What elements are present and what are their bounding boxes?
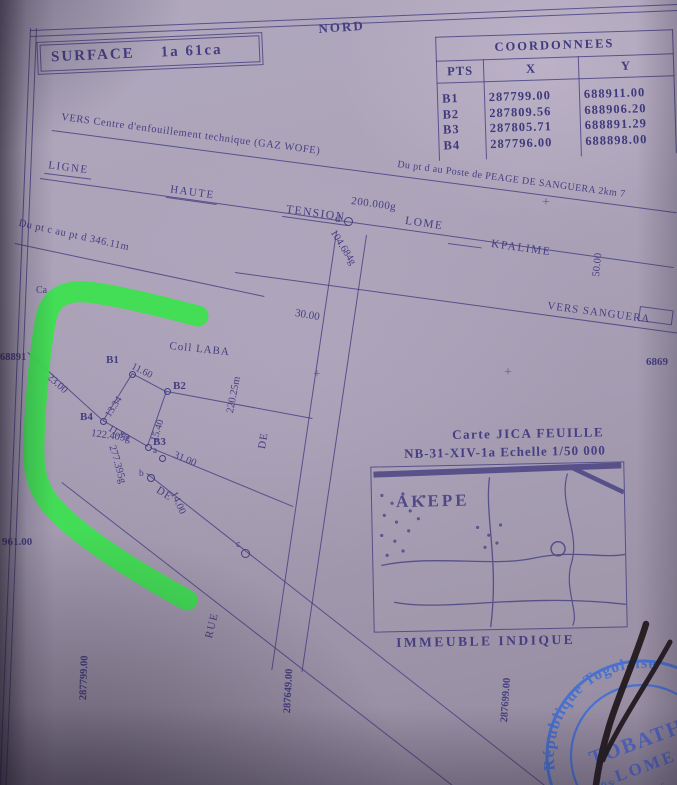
angle-200-label: 200.000g [350,196,396,214]
stamp-fragment-1: et res [641,779,667,785]
survey-plan-photo: NORD SURFACE 1a 61ca COORDONNEES PTS X Y… [0,0,677,785]
north-label: NORD [318,19,365,36]
point-b-label: b [139,470,144,480]
col-pts: PTS [436,60,483,83]
col-y: Y [578,54,674,79]
svg-text:République Togolaise: République Togolaise [522,644,677,775]
stamp-center-line1: TOBATH [586,714,677,771]
de-street-vertical: DE [257,432,271,450]
grid-cross: + [313,368,321,383]
ligne-label: LIGNE [44,160,92,179]
survey-point-b3 [145,444,152,451]
point-a-label: a [153,446,157,455]
point-b1-label: B1 [106,355,119,367]
vers-centre-label: VERS Centre d'enfouillement technique (G… [61,112,321,157]
map-place-label: AKEPE [396,491,470,512]
side-b1-b4: 13.34 [104,395,125,420]
coord-left-partial: 68891 [0,352,26,363]
dist-31-label: 31.00 [172,450,198,469]
haute-label: HAUTE [166,184,218,204]
grid-cross: + [542,196,550,211]
survey-line [15,243,265,297]
map-title: Carte JICA FEUILLE [452,425,604,441]
map-inset: AKEPE [370,461,627,632]
survey-point-a [159,455,166,462]
coord-right-partial: 6869 [646,357,668,369]
survey-line [235,272,677,334]
dist-220-label: 220.25m [225,376,243,414]
survey-point-b4 [100,418,107,425]
survey-point-b2 [164,388,171,395]
dist-50-label: 50.00 [591,253,604,278]
point-d-label: d [335,214,340,225]
col-x: X [483,57,579,82]
map-subtitle: NB-31-XIV-1a Echelle 1/50 000 [404,443,606,460]
stamp-center-line2: LOME [612,746,677,785]
surface-value: 1a 61ca [160,42,223,62]
point-b2-label: B2 [173,381,186,393]
rue-label: RUE [204,611,222,640]
street-line [301,235,367,672]
survey-line [448,243,482,248]
coordinates-table: COORDONNEES PTS X Y B1 287799.00 688911.… [435,29,677,160]
stamp-arc-left-text: Ste Togo [594,765,654,785]
svg-text:Ste Togo: Ste Togo [594,765,654,785]
dimension-line [167,391,313,419]
dist-30-label: 30.00 [294,308,320,324]
stamp-arc-top-text: République Togolaise [522,644,677,775]
angle-277-label: 277.395g [106,444,127,485]
coord-left-partial2: 961.00 [2,537,32,549]
bottom-coord-2: 287649.00 [282,668,295,713]
survey-point-b [147,474,155,482]
bottom-coord-1: 287799.00 [78,655,91,700]
coll-laba-label: Coll LABA [169,341,231,359]
partial-text-ca: Ca [36,286,47,297]
bottom-coord-3: 287699.00 [499,677,513,722]
grid-cross: + [504,366,512,381]
map-drawing: AKEPE [371,462,626,631]
survey-point-d [344,217,353,226]
frame-left-border [0,28,37,785]
surface-box: SURFACE 1a 61ca [36,32,263,75]
kpalime-label: KPALIME [490,238,552,258]
map-caption: IMMEUBLE INDIQUE [396,633,575,650]
street-line [271,232,337,670]
point-b4-label: B4 [80,412,93,424]
point-c-label: c [236,540,240,551]
survey-point-c [241,549,250,558]
official-stamp: République Togolaise Ste Togo ★ TOBATH L… [522,636,677,785]
surface-label: SURFACE [51,46,135,67]
dist-23-label: 23.00 [45,372,70,396]
